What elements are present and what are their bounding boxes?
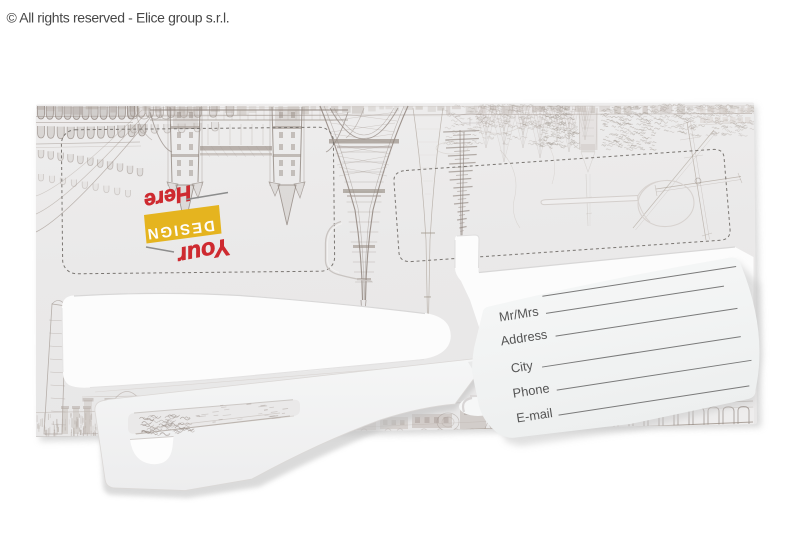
svg-text:© All rights reserved - Elice: © All rights reserved - Elice group s.r.… xyxy=(7,10,230,26)
